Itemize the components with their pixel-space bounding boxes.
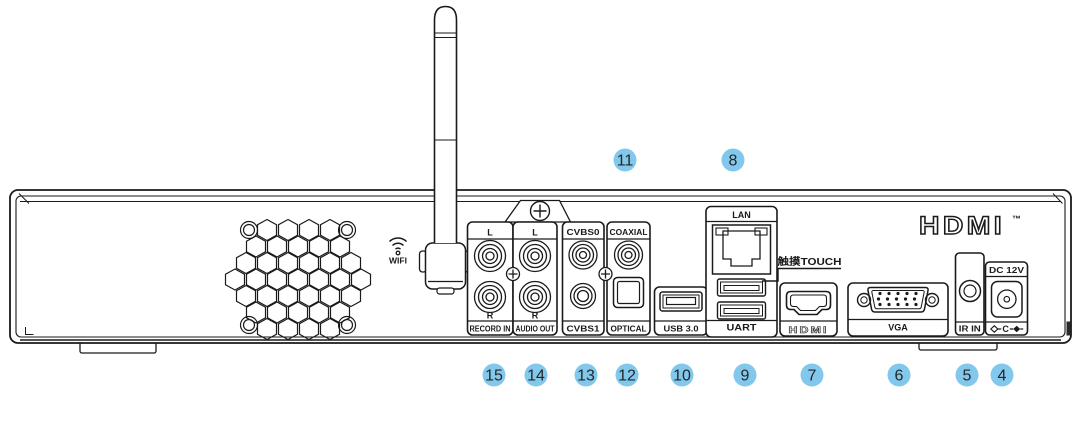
optical-label: OPTICAL bbox=[611, 325, 647, 334]
record-in-right-label: R bbox=[487, 311, 494, 321]
record-in-left-label: L bbox=[487, 228, 493, 238]
callout-4: 4 bbox=[991, 364, 1014, 387]
callout-10: 10 bbox=[671, 364, 694, 387]
svg-text:10: 10 bbox=[673, 368, 691, 385]
audio-out-label: AUDIO OUT bbox=[516, 325, 555, 334]
vga-label: VGA bbox=[888, 323, 908, 333]
svg-text:4: 4 bbox=[998, 368, 1007, 385]
svg-text:8: 8 bbox=[729, 153, 738, 170]
callout-13: 13 bbox=[575, 364, 598, 387]
callout-8: 8 bbox=[722, 149, 745, 172]
callout-7: 7 bbox=[801, 364, 824, 387]
ir-port-group: IR IN bbox=[956, 253, 985, 335]
digital-audio-port-group: COAXIAL OPTICAL bbox=[607, 222, 650, 335]
record-in-label: RECORD IN bbox=[470, 325, 511, 334]
edge-foot-right bbox=[1067, 322, 1071, 336]
svg-text:9: 9 bbox=[741, 368, 750, 385]
callout-11: 11 bbox=[614, 149, 637, 172]
callout-5: 5 bbox=[956, 364, 979, 387]
coaxial-label: COAXIAL bbox=[610, 228, 648, 237]
record-in-port-group: L R RECORD IN bbox=[468, 222, 514, 335]
vga-port-group: VGA bbox=[848, 283, 948, 336]
antenna-shaft bbox=[435, 7, 457, 244]
wifi-label: WIFI bbox=[389, 256, 407, 266]
lan-uart-port-group: LAN UART bbox=[706, 207, 777, 338]
hdmi-trademark: ™ bbox=[1012, 214, 1021, 224]
lan-label: LAN bbox=[732, 210, 751, 220]
usb-label: USB 3.0 bbox=[664, 324, 699, 334]
audio-out-port-group: L R AUDIO OUT bbox=[513, 222, 557, 335]
svg-text:11: 11 bbox=[617, 153, 634, 170]
svg-text:7: 7 bbox=[808, 368, 817, 385]
hdmi-logo-text: HDMI bbox=[919, 212, 1005, 240]
dc-label: DC 12V bbox=[989, 265, 1024, 275]
hdmi-port-group: HDMI bbox=[780, 283, 837, 336]
cvbs0-label: CVBS0 bbox=[567, 228, 601, 237]
dc-power-group: DC 12V C bbox=[986, 262, 1028, 335]
uart-label: UART bbox=[727, 323, 758, 333]
hdmi-port-label: HDMI bbox=[789, 325, 829, 335]
wifi-antenna bbox=[420, 7, 472, 295]
svg-text:6: 6 bbox=[895, 368, 904, 385]
svg-text:5: 5 bbox=[963, 368, 972, 385]
touch-label: 触摸TOUCH bbox=[776, 255, 841, 268]
rear-panel-diagram: WIFI L R RECORD IN L bbox=[0, 0, 1082, 438]
svg-text:15: 15 bbox=[485, 368, 503, 385]
cvbs1-label: CVBS1 bbox=[567, 325, 601, 334]
svg-text:14: 14 bbox=[527, 368, 545, 385]
ir-label: IR IN bbox=[959, 325, 981, 334]
callout-6: 6 bbox=[888, 364, 911, 387]
rear-panel-drawing: WIFI L R RECORD IN L bbox=[0, 0, 1082, 438]
screw-cvbs bbox=[599, 268, 612, 281]
usb-port-group: USB 3.0 bbox=[655, 287, 708, 335]
audio-out-right-label: R bbox=[532, 311, 539, 321]
callout-14: 14 bbox=[525, 364, 548, 387]
callout-9: 9 bbox=[734, 364, 757, 387]
svg-text:13: 13 bbox=[577, 368, 595, 385]
audio-out-left-label: L bbox=[532, 228, 538, 238]
screw-audio bbox=[507, 268, 520, 281]
callout-12: 12 bbox=[616, 364, 639, 387]
svg-text:C: C bbox=[1002, 324, 1009, 334]
cvbs-port-group: CVBS0 CVBS1 bbox=[563, 222, 605, 335]
svg-text:12: 12 bbox=[618, 368, 636, 385]
callout-15: 15 bbox=[483, 364, 506, 387]
